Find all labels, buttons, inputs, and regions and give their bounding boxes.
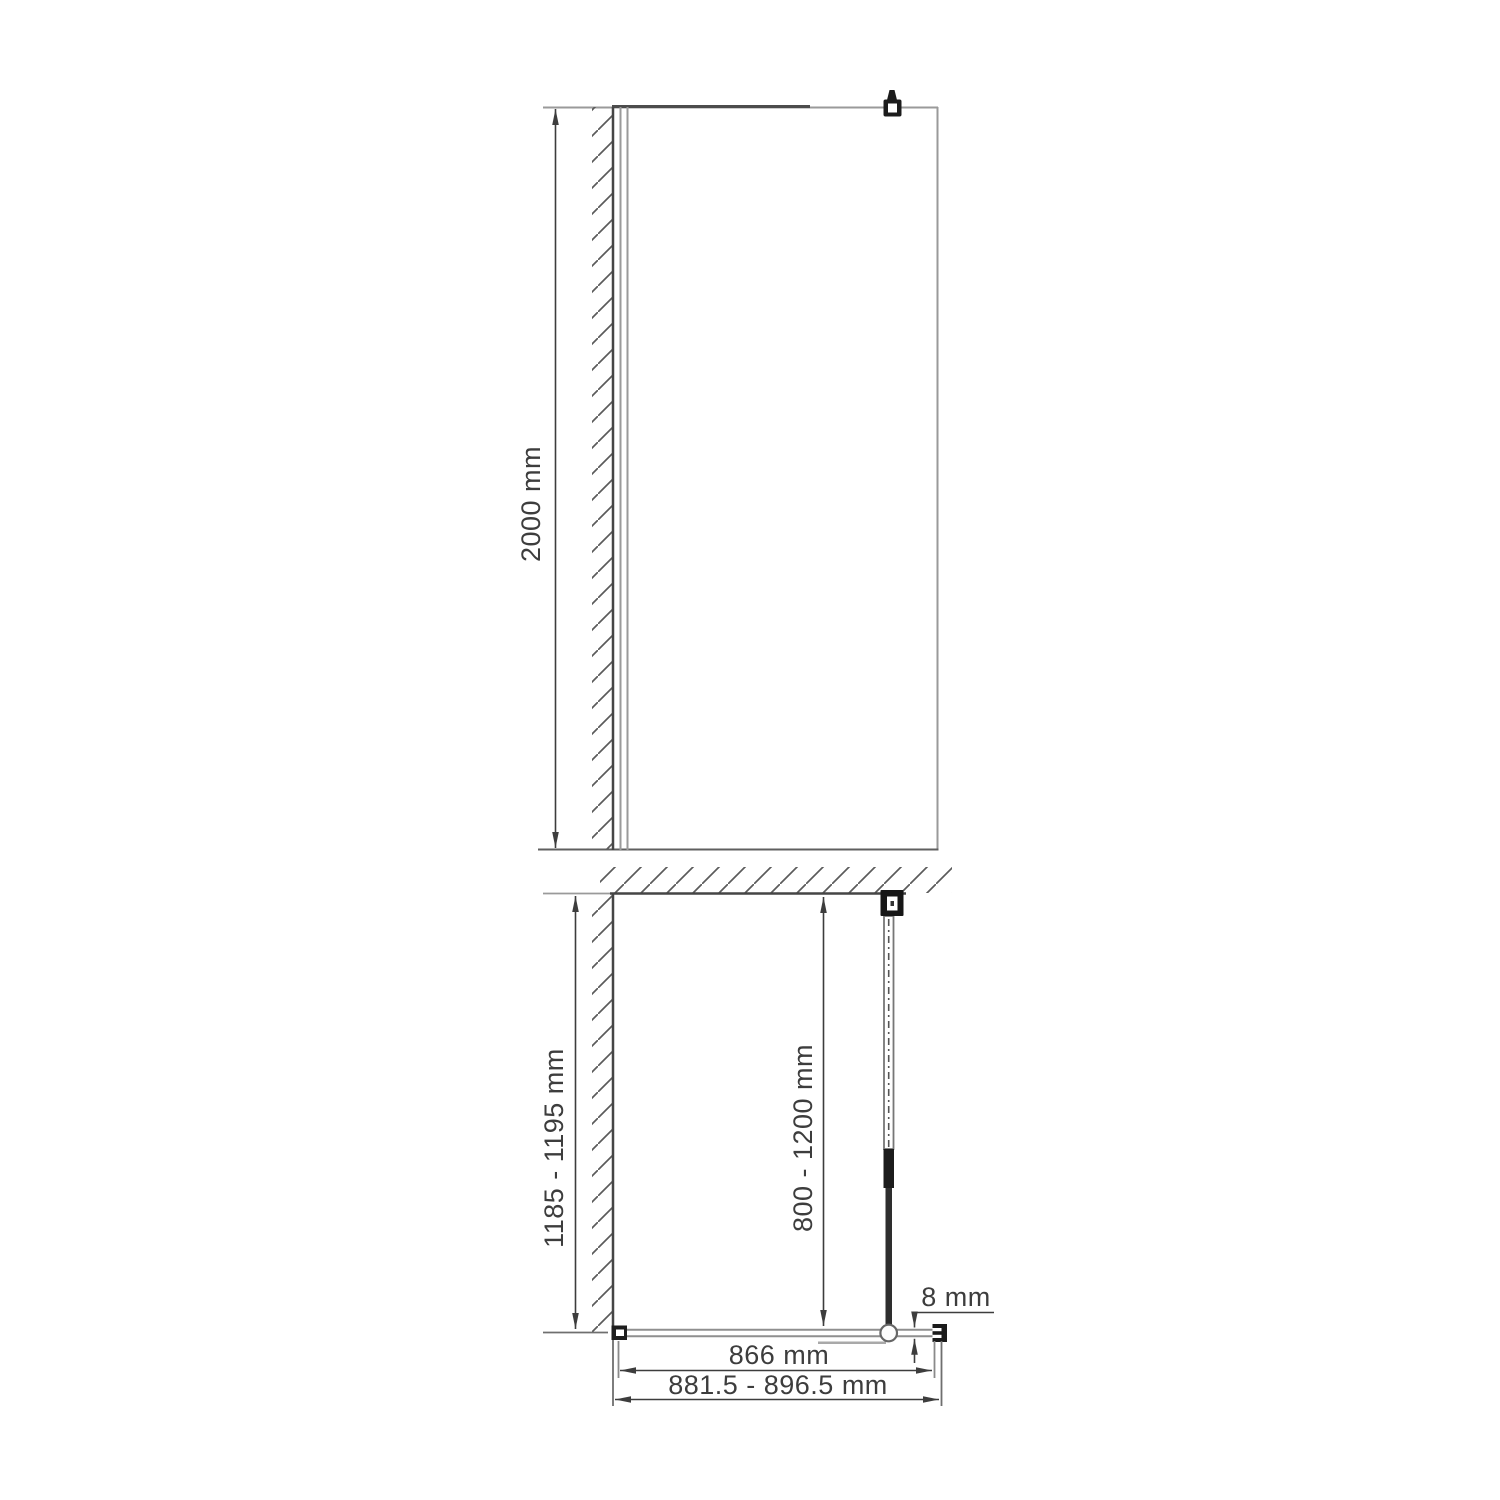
support-bar-glass-clamp-icon xyxy=(880,1325,897,1342)
dimension-glass-thickness: 8 mm xyxy=(914,1282,994,1363)
glass-end-profile-icon-left xyxy=(612,1326,628,1341)
dimension-overall-width: 881.5 - 896.5 mm xyxy=(615,1370,939,1400)
technical-drawing-canvas: 2000 mm 1185 - 1195 mm 800 - 1200 mm xyxy=(0,0,1500,1500)
wall-mount-screw xyxy=(891,901,895,906)
dimension-support-bar-length: 800 - 1200 mm xyxy=(788,897,823,1326)
clamp-window xyxy=(888,104,897,113)
glass-clamp-icon xyxy=(884,90,902,117)
glass-thickness-label: 8 mm xyxy=(921,1282,991,1312)
glass-end-profile-icon-right xyxy=(933,1324,948,1342)
right-end-profile-slot-bottom xyxy=(933,1335,942,1338)
back-wall-hatch xyxy=(600,867,952,893)
panel-height-label: 2000 mm xyxy=(516,446,546,562)
glass-width-label: 866 mm xyxy=(729,1340,830,1370)
right-end-profile-body xyxy=(933,1324,948,1342)
support-bar xyxy=(881,890,904,1328)
overall-width-label: 881.5 - 896.5 mm xyxy=(668,1370,888,1400)
drawing-svg: 2000 mm 1185 - 1195 mm 800 - 1200 mm xyxy=(0,0,1500,1500)
side-wall-depth-label: 1185 - 1195 mm xyxy=(539,1048,569,1248)
support-bar-clamp-sleeve xyxy=(884,1149,895,1188)
wall-hatch xyxy=(592,107,613,850)
support-bar-wall-mount-icon xyxy=(881,890,904,916)
support-bar-inner-tube xyxy=(886,1188,893,1328)
dimension-side-wall-depth: 1185 - 1195 mm xyxy=(539,896,575,1329)
dimension-glass-width: 866 mm xyxy=(620,1340,932,1371)
plan-view: 1185 - 1195 mm 800 - 1200 mm xyxy=(539,867,994,1406)
front-elevation-view: 2000 mm xyxy=(516,90,938,850)
clamp-knob xyxy=(887,90,897,100)
left-end-profile-slot xyxy=(616,1330,624,1337)
right-end-profile-slot-top xyxy=(933,1328,942,1331)
support-bar-length-label: 800 - 1200 mm xyxy=(788,1044,818,1232)
dimension-panel-height: 2000 mm xyxy=(516,109,555,848)
side-wall-hatch xyxy=(592,894,613,1332)
